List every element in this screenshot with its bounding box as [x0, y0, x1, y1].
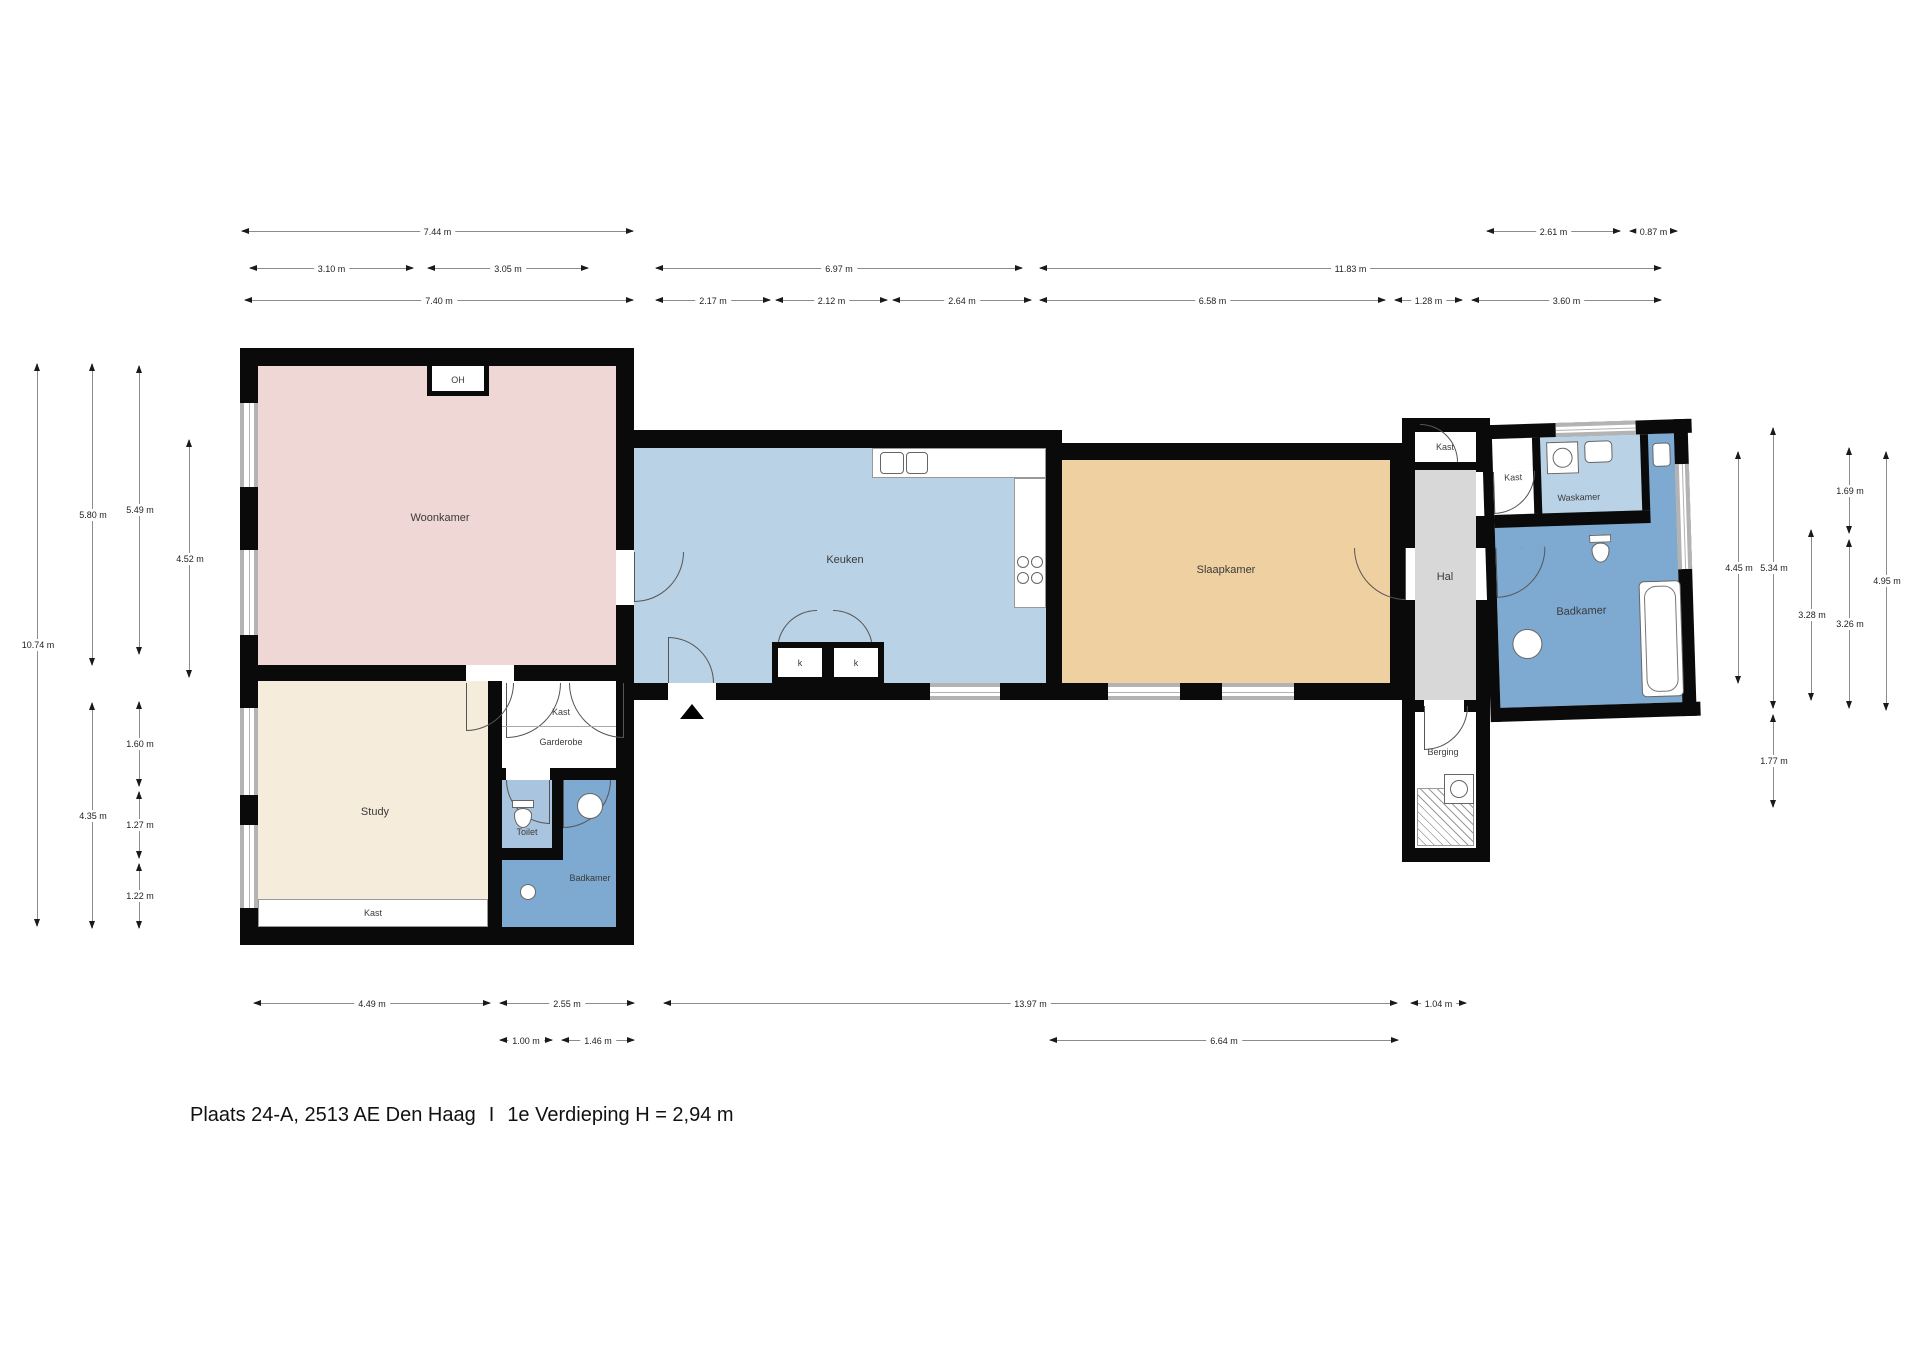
floor-plan: OH k k [0, 0, 1920, 1358]
stove-icon [1017, 572, 1029, 584]
dim-label: 2.61 m [1536, 227, 1572, 237]
dim-label: 4.95 m [1870, 575, 1904, 587]
dim-h: 3.05 m [428, 268, 588, 269]
wall [240, 348, 634, 366]
dim-v: 1.69 m [1849, 448, 1850, 533]
room-label-k2: k [854, 658, 859, 668]
window [930, 683, 1000, 700]
door-leaf [1405, 548, 1406, 600]
wall [552, 780, 563, 848]
sink-icon [1584, 440, 1613, 463]
window [1222, 683, 1294, 700]
sink-icon [880, 452, 904, 474]
dim-h: 1.00 m [500, 1040, 552, 1041]
plan-floor-info: 1e Verdieping H = 2,94 m [507, 1104, 733, 1126]
dim-v: 4.52 m [189, 440, 190, 677]
wall [502, 848, 563, 860]
window [240, 403, 258, 487]
dim-v: 5.80 m [92, 364, 93, 665]
room-label-badkamer-left: Badkamer [569, 873, 610, 883]
bathtub-inner [1644, 585, 1679, 692]
dim-label: 4.45 m [1722, 562, 1756, 574]
window [1108, 683, 1180, 700]
dim-label: 4.52 m [173, 553, 207, 565]
dim-h: 2.64 m [893, 300, 1031, 301]
sink-icon [1652, 442, 1671, 467]
dim-v: 5.34 m [1773, 428, 1774, 708]
dim-h: 2.17 m [656, 300, 770, 301]
dim-label: 13.97 m [1010, 999, 1051, 1009]
dim-h: 13.97 m [664, 1003, 1397, 1004]
wall [240, 927, 634, 945]
window [1675, 464, 1692, 569]
bathtub-icon [1638, 580, 1684, 697]
washbasin-icon [577, 793, 603, 819]
dim-label: 5.80 m [76, 509, 110, 521]
wall [1415, 700, 1424, 712]
dim-label: 0.87 m [1636, 227, 1672, 237]
dim-h: 6.58 m [1040, 300, 1385, 301]
door-leaf [563, 780, 564, 828]
wall [716, 683, 1406, 700]
dim-h: 4.49 m [254, 1003, 490, 1004]
door-leaf [549, 780, 550, 824]
wall [502, 768, 506, 780]
dim-v: 1.22 m [139, 864, 140, 928]
right-wing: Kast Waskamer Badkamer [1481, 412, 1703, 729]
wall [1402, 848, 1490, 862]
room-label-kast-garderobe: Kast [552, 707, 570, 717]
room-label-garderobe: Garderobe [539, 737, 582, 747]
wall [1062, 443, 1406, 460]
dim-h: 2.61 m [1487, 231, 1620, 232]
dim-label: 3.05 m [490, 264, 526, 274]
dim-h: 7.40 m [245, 300, 633, 301]
wall [1402, 600, 1415, 862]
room-label-berging: Berging [1427, 747, 1458, 757]
dim-label: 6.64 m [1206, 1036, 1242, 1046]
room-label-waskamer: Waskamer [1557, 492, 1600, 503]
wall [1415, 462, 1476, 470]
room-label-oh: OH [451, 375, 465, 385]
dim-h: 1.46 m [562, 1040, 634, 1041]
wall [550, 768, 634, 780]
plan-title: Plaats 24-A, 2513 AE Den HaagI1e Verdiep… [190, 1104, 734, 1127]
closet-shelf-line [502, 726, 616, 727]
dim-h: 7.44 m [242, 231, 633, 232]
window [240, 708, 258, 795]
dim-label: 5.49 m [123, 504, 157, 516]
dim-label: 2.64 m [944, 296, 980, 306]
window [240, 550, 258, 635]
wall [1402, 418, 1415, 548]
room-label-woonkamer: Woonkamer [410, 512, 469, 524]
wall [616, 448, 634, 550]
dim-h: 2.12 m [776, 300, 887, 301]
dim-label: 6.97 m [821, 264, 857, 274]
room-label-kast-study: Kast [364, 908, 382, 918]
dim-label: 6.58 m [1195, 296, 1231, 306]
room-label-slaapkamer: Slaapkamer [1197, 564, 1256, 576]
room-label-hal: Hal [1437, 571, 1454, 583]
dim-v: 4.95 m [1886, 452, 1887, 710]
dim-v: 1.27 m [139, 792, 140, 858]
dim-label: 11.83 m [1331, 264, 1371, 274]
door-leaf [1424, 706, 1425, 750]
dim-label: 1.60 m [123, 738, 157, 750]
dim-v: 4.35 m [92, 703, 93, 928]
room-label-k1: k [798, 658, 803, 668]
room-study [258, 681, 488, 927]
wall [1046, 430, 1062, 700]
room-label-kast-waskamer: Kast [1504, 472, 1522, 483]
dim-label: 3.26 m [1833, 618, 1867, 630]
shower-icon [520, 884, 536, 900]
room-label-study: Study [361, 806, 389, 818]
dim-h: 3.10 m [250, 268, 413, 269]
room-label-badkamer-right: Badkamer [1556, 604, 1606, 618]
dim-label: 1.77 m [1757, 755, 1791, 767]
dim-label: 1.00 m [508, 1036, 544, 1046]
dim-h: 3.60 m [1472, 300, 1661, 301]
door-leaf [466, 683, 467, 731]
dim-h: 6.97 m [656, 268, 1022, 269]
dim-h: 6.64 m [1050, 1040, 1398, 1041]
dim-label: 1.28 m [1411, 296, 1447, 306]
dim-label: 2.17 m [695, 296, 731, 306]
entrance-marker-icon [680, 704, 704, 719]
plan-address: Plaats 24-A, 2513 AE Den Haag [190, 1104, 476, 1126]
dim-v: 10.74 m [37, 364, 38, 926]
room-label-kast-hal: Kast [1436, 442, 1454, 452]
door-leaf [506, 683, 507, 738]
sink-icon [906, 452, 928, 474]
dim-label: 1.27 m [123, 819, 157, 831]
dim-h: 1.04 m [1411, 1003, 1466, 1004]
wall [240, 665, 466, 681]
stove-icon [1017, 556, 1029, 568]
dim-h: 0.87 m [1630, 231, 1677, 232]
washer-drum-icon [1450, 780, 1468, 798]
dim-label: 3.28 m [1795, 609, 1829, 621]
dim-label: 4.49 m [354, 999, 390, 1009]
dim-label: 1.46 m [580, 1036, 616, 1046]
dim-label: 4.35 m [76, 810, 110, 822]
door-leaf [634, 552, 635, 602]
dim-v: 4.45 m [1738, 452, 1739, 683]
dim-label: 5.34 m [1757, 562, 1791, 574]
dim-label: 7.40 m [421, 296, 457, 306]
room-label-keuken: Keuken [826, 554, 863, 566]
dim-h: 2.55 m [500, 1003, 634, 1004]
dim-label: 1.04 m [1421, 999, 1457, 1009]
dim-label: 1.22 m [123, 890, 157, 902]
kitchen-counter [1014, 478, 1046, 608]
stove-icon [1031, 572, 1043, 584]
door-leaf [623, 683, 624, 738]
room-hal [1415, 470, 1476, 700]
dim-v: 1.77 m [1773, 715, 1774, 807]
dim-v: 3.28 m [1811, 530, 1812, 700]
dim-label: 3.60 m [1549, 296, 1585, 306]
title-separator: I [489, 1104, 495, 1126]
room-badkamer-left-lower [502, 860, 616, 927]
dim-v: 1.60 m [139, 702, 140, 786]
dim-h: 1.28 m [1395, 300, 1462, 301]
room-label-toilet: Toilet [516, 827, 537, 837]
stove-icon [1031, 556, 1043, 568]
dim-label: 7.44 m [420, 227, 456, 237]
window [240, 825, 258, 908]
dim-label: 1.69 m [1833, 485, 1867, 497]
dim-v: 5.49 m [139, 366, 140, 654]
door-leaf [668, 637, 669, 683]
dim-label: 3.10 m [314, 264, 350, 274]
dim-v: 3.26 m [1849, 540, 1850, 708]
dim-h: 11.83 m [1040, 268, 1661, 269]
dim-label: 2.12 m [814, 296, 850, 306]
dim-label: 2.55 m [549, 999, 585, 1009]
window [1555, 420, 1635, 437]
toilet-icon [512, 800, 534, 808]
dim-label: 10.74 m [19, 639, 58, 651]
wall [616, 430, 1062, 448]
